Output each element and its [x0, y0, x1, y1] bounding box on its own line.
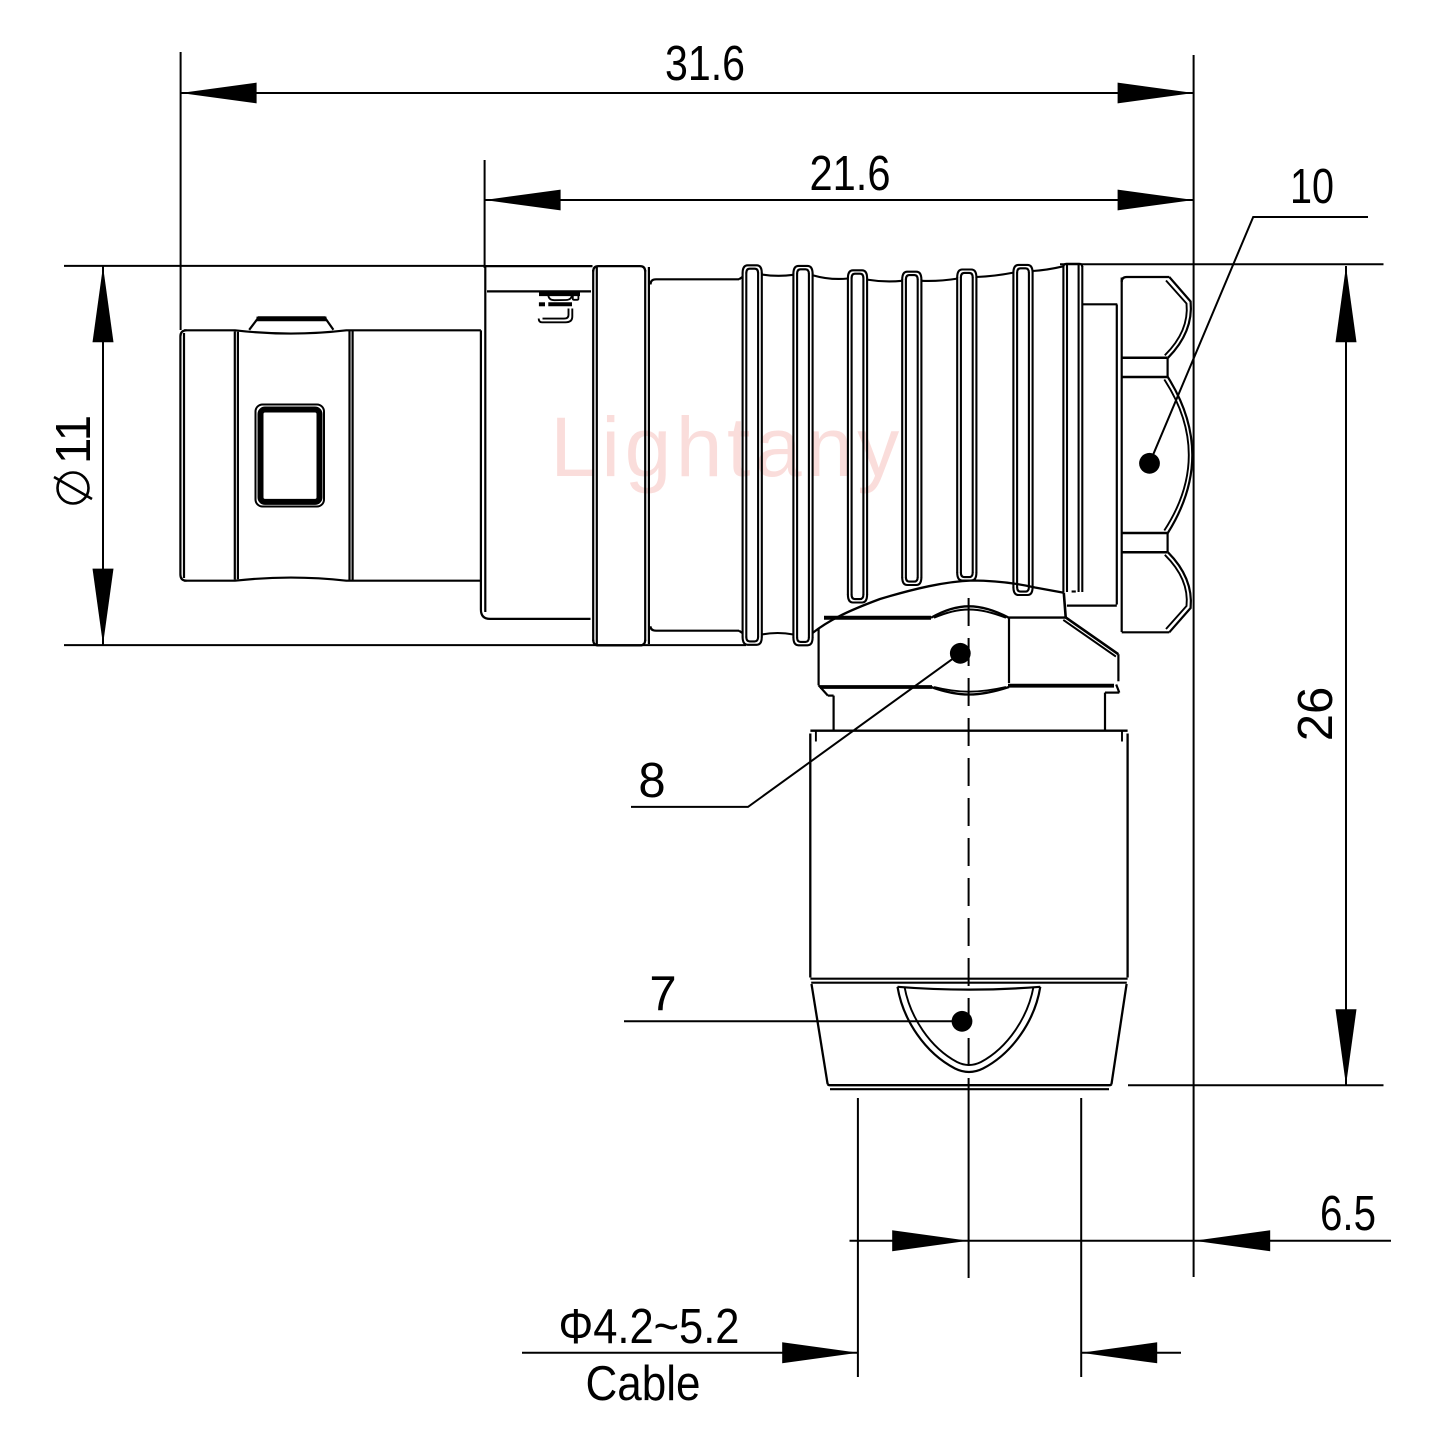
svg-text:Cable: Cable — [586, 1357, 701, 1411]
svg-text:6.5: 6.5 — [1320, 1187, 1376, 1241]
svg-text:21.6: 21.6 — [810, 147, 891, 201]
svg-text:10: 10 — [1290, 160, 1334, 214]
svg-text:Φ4.2~5.2: Φ4.2~5.2 — [559, 1300, 740, 1354]
svg-text:8: 8 — [638, 754, 665, 808]
svg-text:7: 7 — [649, 967, 676, 1021]
svg-text:26: 26 — [1289, 687, 1343, 742]
svg-text:31.6: 31.6 — [665, 37, 745, 91]
svg-text:11: 11 — [47, 415, 101, 464]
